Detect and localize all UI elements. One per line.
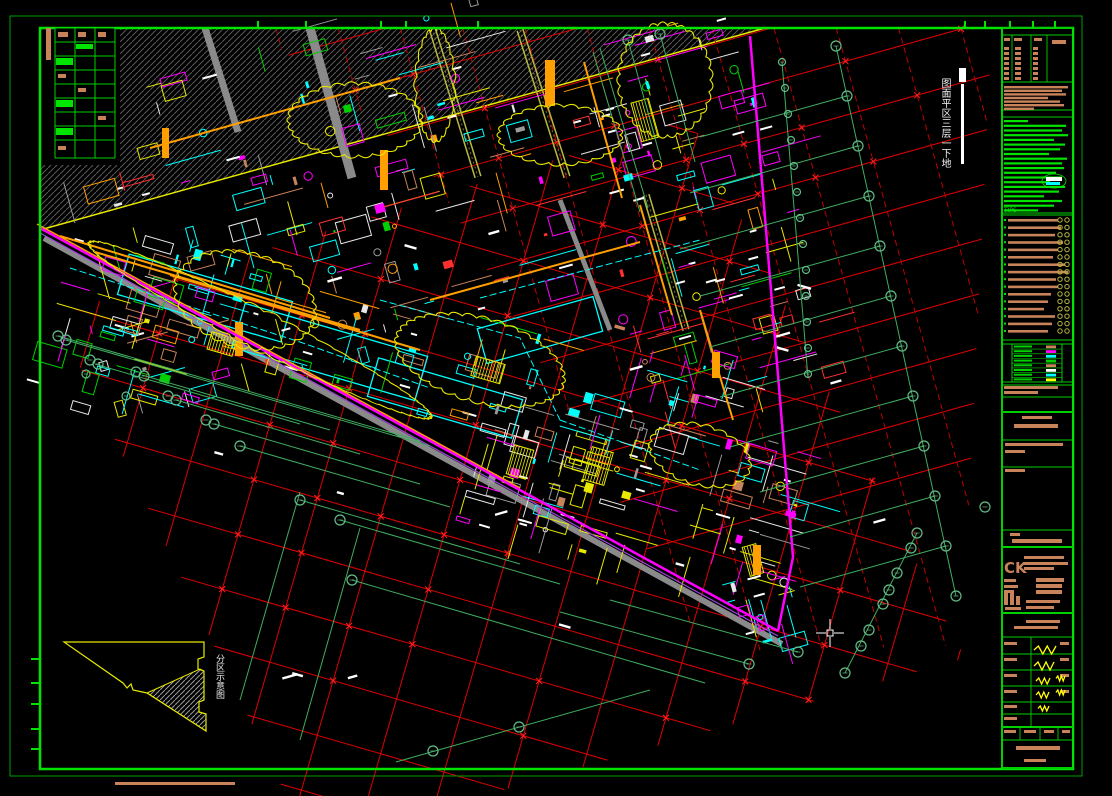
title-block-panel bbox=[1002, 28, 1073, 768]
panel-tips-label: TIPS bbox=[1003, 207, 1017, 214]
drawing-title: 图面平区三层一下地 bbox=[939, 78, 949, 168]
cad-application-window: TIPS CK 图面平区三层一下地 分区示意图 bbox=[0, 0, 1112, 796]
company-logo: CK bbox=[1004, 559, 1028, 577]
drawing-viewport[interactable] bbox=[40, 28, 1002, 769]
key-plan-label: 分区示意图 bbox=[214, 654, 224, 710]
